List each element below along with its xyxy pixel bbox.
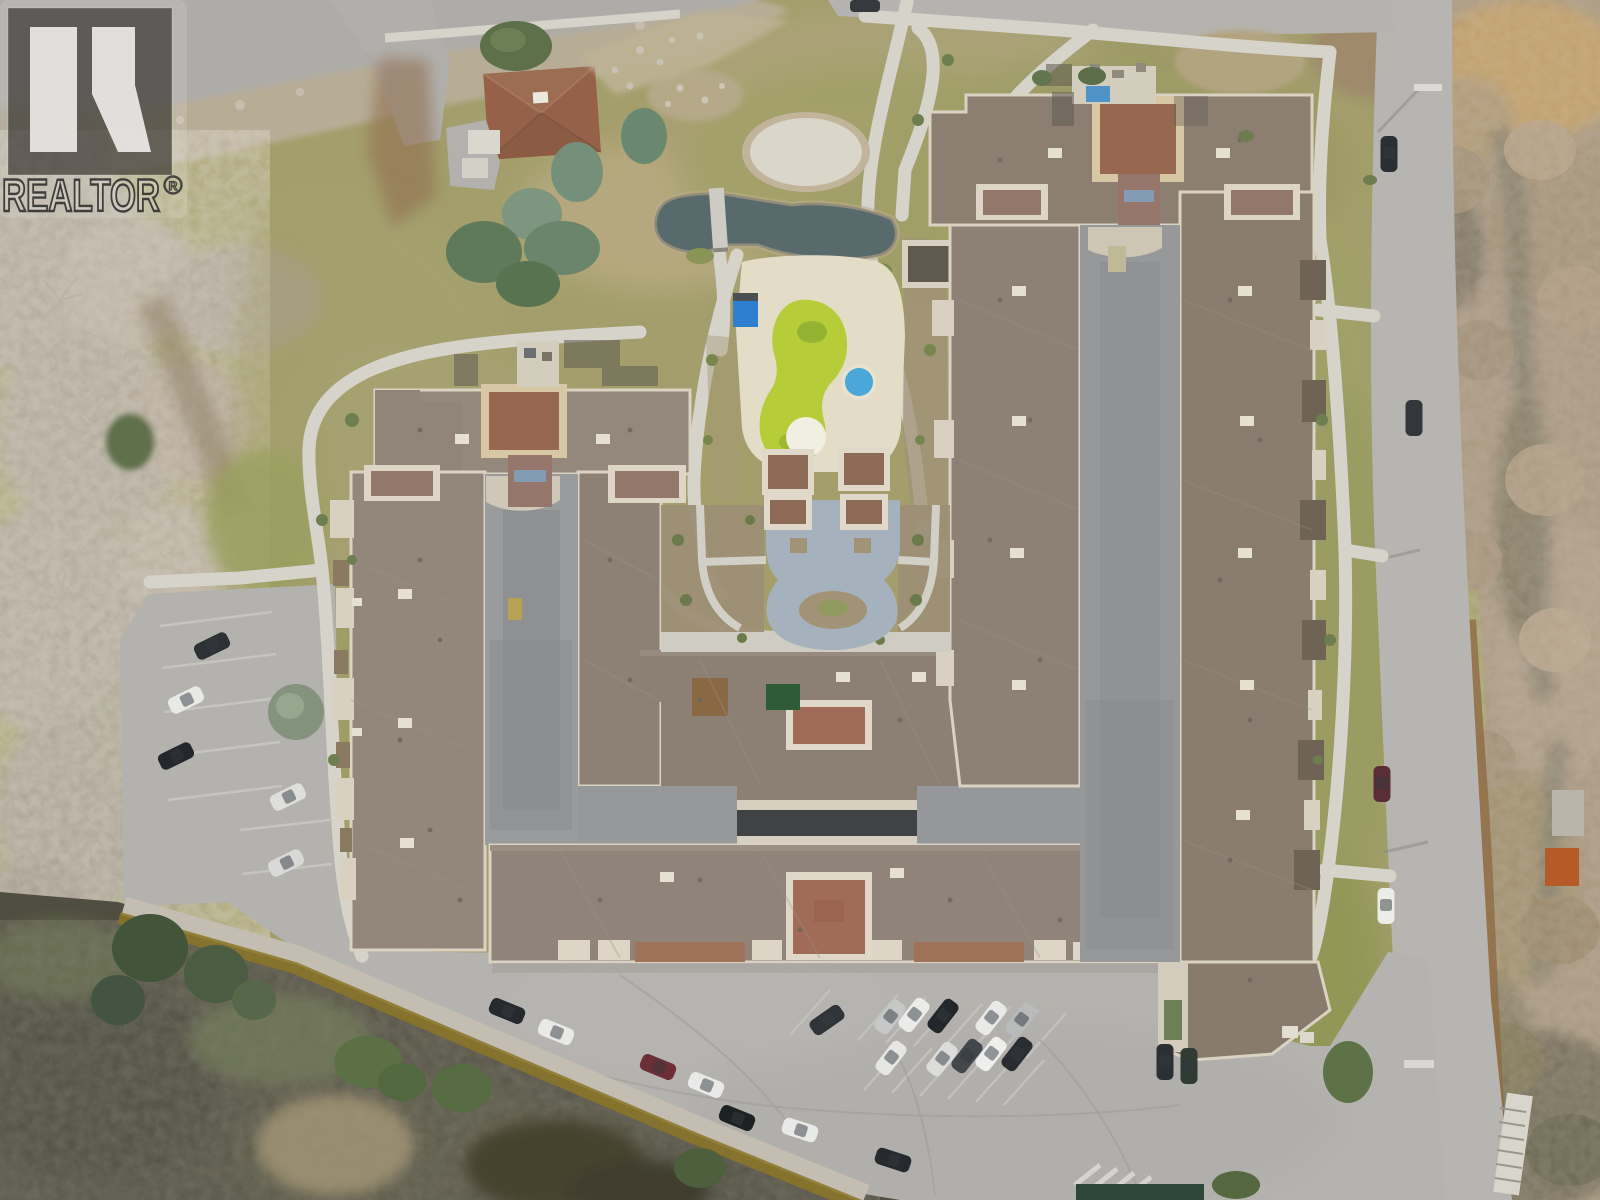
svg-text:R: R	[169, 179, 178, 193]
svg-text:REALTOR: REALTOR	[2, 170, 160, 221]
